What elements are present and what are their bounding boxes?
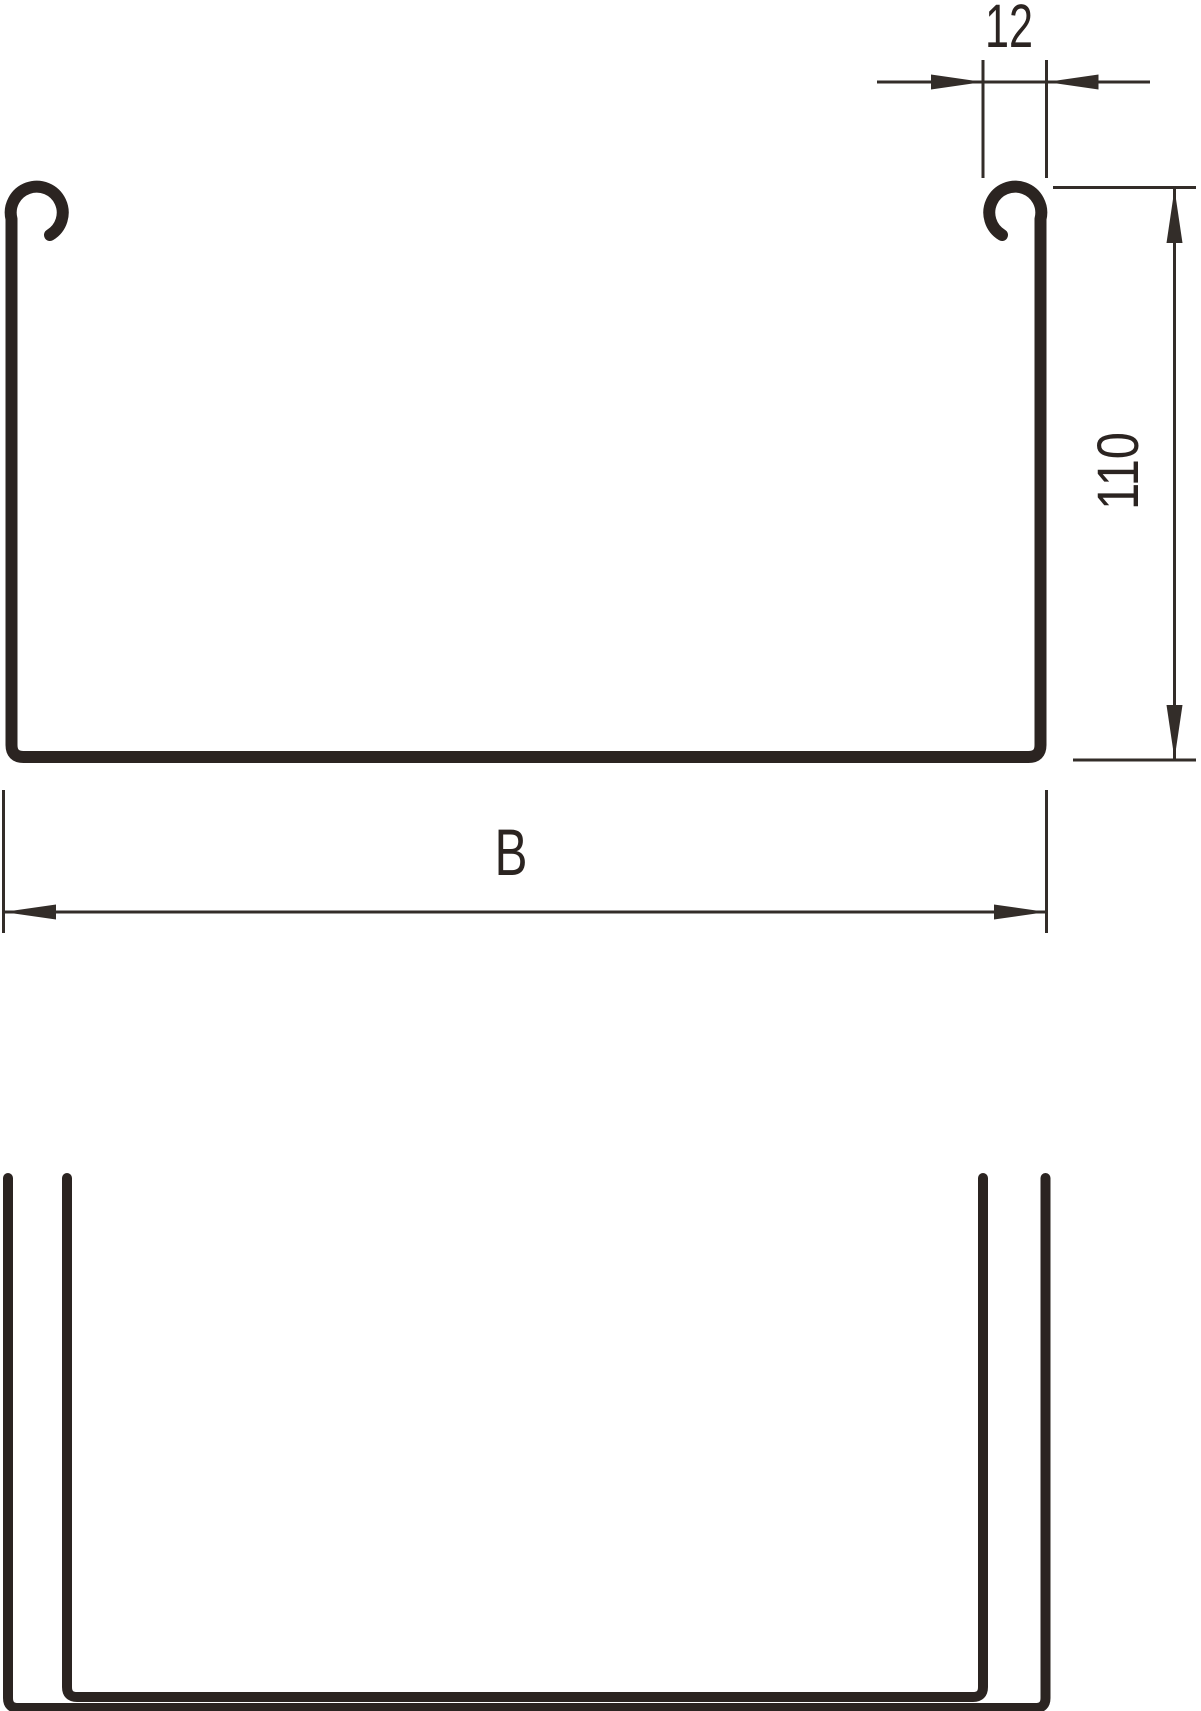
dim-arrow-pointing-down bbox=[1167, 705, 1183, 759]
dim-arrow-pointing-left bbox=[4, 905, 57, 920]
dimension-label-height: 110 bbox=[1086, 432, 1151, 510]
side-view-inner-edge bbox=[67, 1178, 983, 1697]
dimension-rail-width: 12 bbox=[877, 0, 1150, 178]
dimension-label-width: B bbox=[495, 815, 528, 889]
dim-arrow-pointing-left bbox=[1047, 75, 1099, 90]
dim-arrow-pointing-up bbox=[1167, 189, 1183, 243]
drawing-canvas: 12 110 B bbox=[0, 0, 1201, 1711]
side-view-outer-edge bbox=[8, 1178, 1046, 1708]
cross-section-view: 12 110 B bbox=[4, 0, 1197, 933]
technical-drawing-svg: 12 110 B bbox=[0, 0, 1201, 1711]
dimension-height: 110 bbox=[1053, 188, 1196, 761]
dim-arrow-pointing-right bbox=[994, 905, 1047, 920]
tray-profile-outline bbox=[11, 187, 1042, 757]
dimension-label-rail-width: 12 bbox=[985, 0, 1033, 60]
dim-arrow-pointing-right bbox=[931, 75, 983, 90]
dimension-width: B bbox=[4, 790, 1047, 933]
side-view bbox=[8, 1178, 1046, 1708]
